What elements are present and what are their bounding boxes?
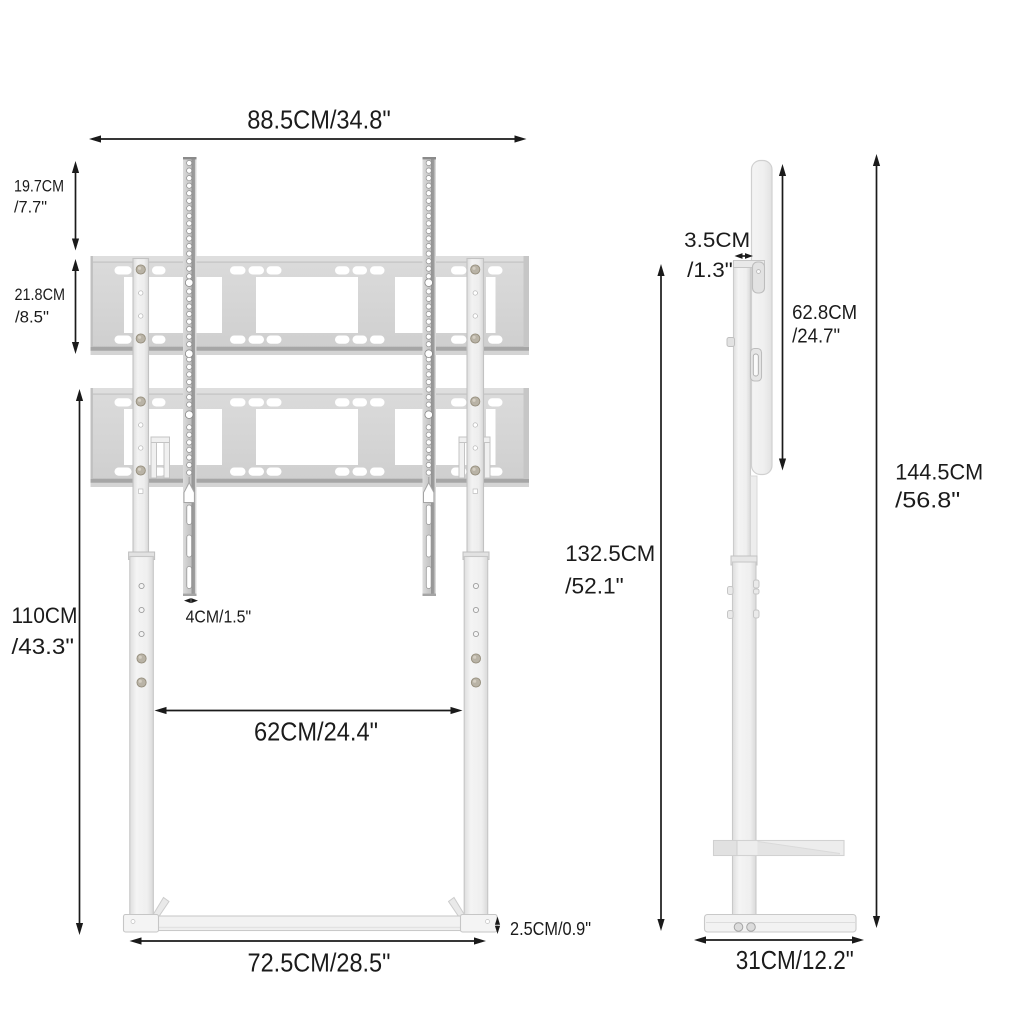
svg-text:62CM/24.4": 62CM/24.4" bbox=[254, 716, 378, 746]
svg-text:72.5CM/28.5": 72.5CM/28.5" bbox=[248, 947, 391, 977]
svg-text:4CM/1.5": 4CM/1.5" bbox=[186, 606, 252, 626]
svg-text:2.5CM/0.9": 2.5CM/0.9" bbox=[510, 918, 591, 939]
svg-text:110CM: 110CM bbox=[12, 603, 78, 628]
svg-text:/52.1": /52.1" bbox=[565, 573, 624, 598]
svg-text:/56.8": /56.8" bbox=[895, 487, 960, 512]
svg-text:144.5CM: 144.5CM bbox=[895, 459, 983, 484]
svg-text:/1.3": /1.3" bbox=[687, 258, 733, 282]
svg-text:62.8CM: 62.8CM bbox=[792, 302, 857, 324]
svg-text:3.5CM: 3.5CM bbox=[684, 228, 750, 252]
svg-text:/7.7": /7.7" bbox=[14, 199, 47, 217]
svg-text:/8.5": /8.5" bbox=[15, 309, 49, 327]
svg-text:19.7CM: 19.7CM bbox=[14, 178, 64, 196]
svg-text:31CM/12.2": 31CM/12.2" bbox=[736, 945, 854, 975]
svg-text:21.8CM: 21.8CM bbox=[15, 286, 66, 304]
svg-text:/24.7": /24.7" bbox=[792, 326, 840, 348]
svg-text:88.5CM/34.8": 88.5CM/34.8" bbox=[247, 105, 391, 135]
svg-text:132.5CM: 132.5CM bbox=[565, 541, 655, 566]
svg-text:/43.3": /43.3" bbox=[12, 634, 75, 659]
